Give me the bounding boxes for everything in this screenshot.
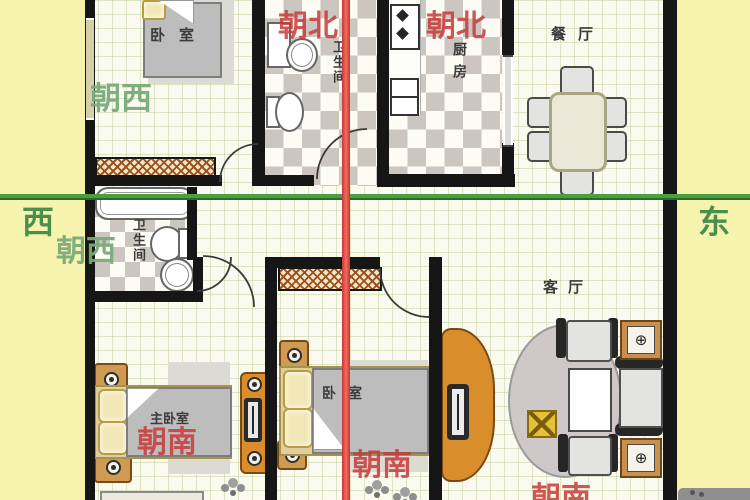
plant-icon <box>228 478 238 488</box>
pillow <box>283 408 313 448</box>
sink-basin <box>160 258 194 292</box>
facing-north-label: 朝北 <box>278 12 338 42</box>
lamp-icon <box>247 451 262 466</box>
armchair <box>568 436 612 476</box>
facing-south-label: 朝南 <box>137 428 197 458</box>
compass-west-label: 西 <box>22 206 54 238</box>
floor-cushion <box>527 410 557 438</box>
plant-icon <box>400 487 410 497</box>
tv <box>447 384 469 440</box>
window <box>503 55 513 147</box>
plant-pot-icon: ⊕ <box>627 326 655 354</box>
coffee-table <box>568 368 612 432</box>
floor-plan: ⊕ ⊕ 卧室 卫生间 厨房 餐厅 卫生间 客厅 主卧室 卧室 朝北 朝北 朝西 … <box>0 0 750 500</box>
lamp-icon <box>287 348 302 363</box>
pillow <box>98 421 128 455</box>
compass-east-label: 东 <box>698 206 730 238</box>
east-west-axis-line <box>0 194 750 200</box>
sofa <box>619 368 663 428</box>
north-south-axis-line <box>342 0 350 500</box>
dining-table <box>549 92 607 172</box>
room-label-living: 客厅 <box>543 280 593 295</box>
toilet-bowl <box>275 92 304 132</box>
wall <box>252 0 265 186</box>
plant-pot-icon: ⊕ <box>627 444 655 472</box>
wall <box>377 0 389 187</box>
wall <box>429 257 442 500</box>
facing-west-label: 朝西 <box>56 237 116 267</box>
facing-south-label: 朝南 <box>352 451 412 481</box>
pillow <box>98 389 128 423</box>
wall <box>85 175 222 186</box>
plant-table: ⊕ <box>620 320 662 360</box>
facing-north-label: 朝北 <box>426 12 486 42</box>
outside-band-east <box>677 0 750 500</box>
bathtub <box>95 187 194 220</box>
armchair-armrest <box>556 318 566 358</box>
plant-table: ⊕ <box>620 438 662 478</box>
wall <box>93 291 203 302</box>
wall <box>265 257 277 500</box>
watermark-mark <box>699 492 704 497</box>
watermark <box>678 488 750 500</box>
lamp-icon <box>247 377 262 392</box>
armchair-armrest <box>558 434 568 472</box>
watermark-mark <box>690 490 695 495</box>
wall <box>502 143 514 187</box>
radiator <box>278 267 382 291</box>
lamp-icon <box>106 460 121 475</box>
facing-south-label: 朝南 <box>531 484 591 500</box>
facing-west-label: 朝西 <box>90 84 152 115</box>
room-label-dining: 餐厅 <box>551 27 605 42</box>
room-label-kitchen: 厨房 <box>452 42 466 86</box>
door-arc <box>203 256 254 307</box>
bench <box>100 491 204 500</box>
kitchen-cabinet <box>390 78 419 98</box>
armchair <box>566 320 612 362</box>
room-label-bedroom-top: 卧室 <box>150 28 208 43</box>
wall <box>193 257 203 297</box>
pillow <box>283 370 313 410</box>
pillow <box>142 0 166 20</box>
door-arc <box>380 268 429 317</box>
wall <box>265 257 380 268</box>
tv <box>244 398 262 442</box>
room-label-bathroom-mid: 卫生间 <box>131 218 144 263</box>
wall <box>377 174 515 187</box>
wall <box>502 0 514 55</box>
kitchen-sink-cabinet <box>390 96 419 116</box>
wall <box>252 175 314 186</box>
wall <box>663 0 677 500</box>
